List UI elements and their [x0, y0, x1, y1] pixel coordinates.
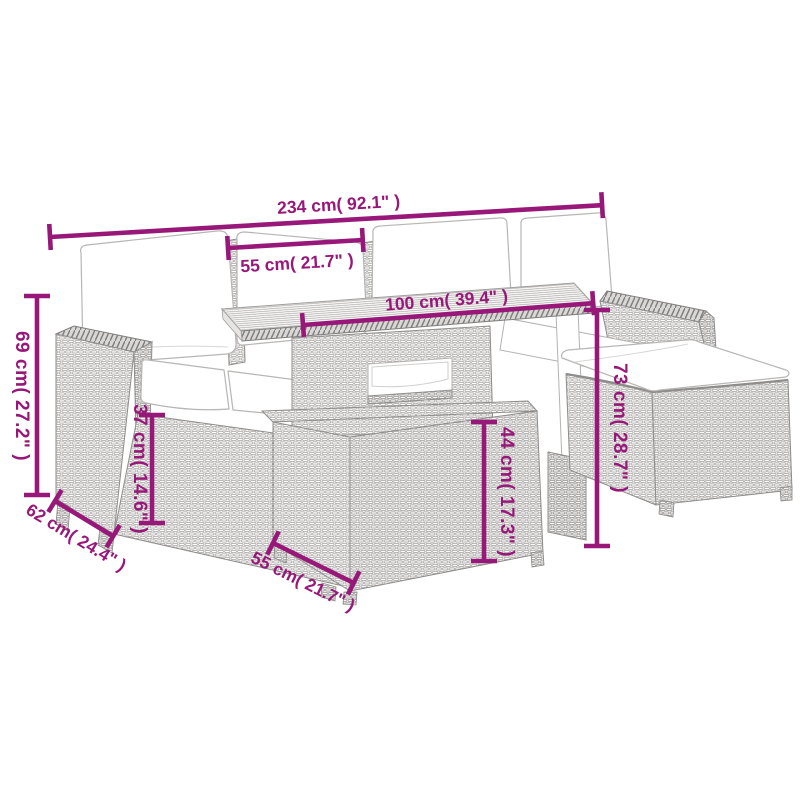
dimension-label: 44 cm( 17.3" ): [496, 427, 517, 557]
seat-cushion: [141, 360, 229, 410]
product-dimensions-diagram: 234 cm( 92.1" ) 55 cm( 21.7" ) 100 cm( 3…: [0, 0, 800, 800]
ottoman-shading: [652, 380, 792, 505]
furniture-illustration: [56, 213, 792, 605]
sofa-set-diagram: 234 cm( 92.1" ) 55 cm( 21.7" ) 100 cm( 3…: [0, 0, 800, 800]
dimension-label: 69 cm( 27.2" ): [11, 331, 32, 461]
dimension-back-height: 69 cm( 27.2" ): [11, 296, 50, 495]
stool-leg: [531, 551, 544, 567]
dimension-label: 234 cm( 92.1" ): [277, 191, 401, 218]
dimension-label: 37 cm( 14.6" ): [129, 404, 150, 534]
ottoman-leg: [659, 500, 674, 517]
ottoman-leg: [780, 486, 792, 501]
dimension-label: 73 cm( 28.7" ): [609, 363, 630, 493]
